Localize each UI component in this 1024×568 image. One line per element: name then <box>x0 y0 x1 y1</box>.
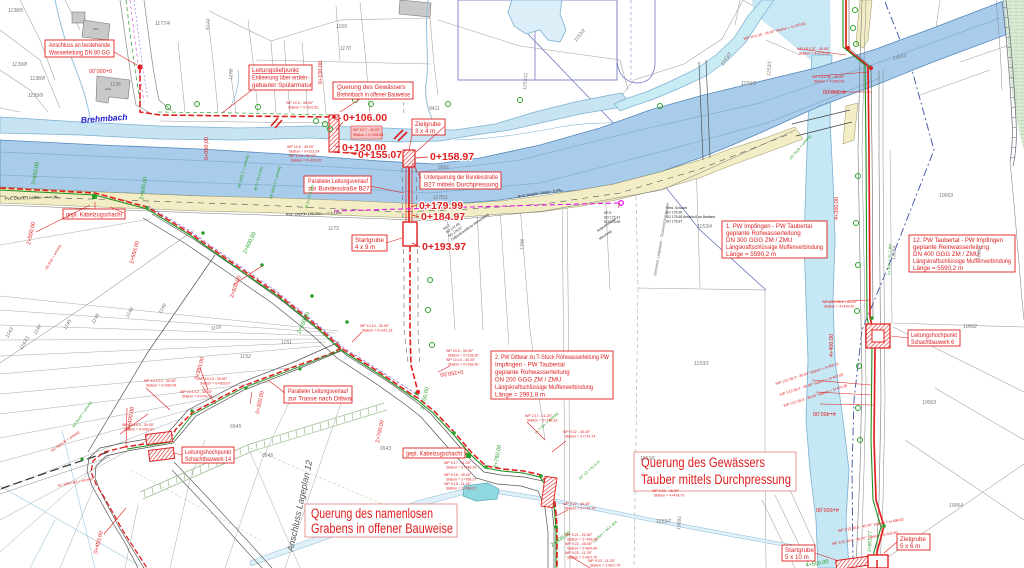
svg-text:gebauter Spülarmatur: gebauter Spülarmatur <box>252 82 312 89</box>
svg-text:WP 9.15 - 11.25°: WP 9.15 - 11.25° <box>444 482 472 486</box>
svg-text:B27 mittels Durchpressung: B27 mittels Durchpressung <box>424 182 499 189</box>
svg-text:10063: 10063 <box>939 193 953 199</box>
svg-text:1151: 1151 <box>281 340 292 346</box>
svg-text:WP 10.13.2 - 30.00°: WP 10.13.2 - 30.00° <box>144 379 177 383</box>
svg-text:Station = 2+748.33: Station = 2+748.33 <box>446 466 476 470</box>
svg-text:WP 10.13.4 - 30.00°: WP 10.13.4 - 30.00° <box>122 423 155 427</box>
svg-text:Querung des Gewässers: Querung des Gewässers <box>641 455 765 470</box>
svg-text:Station = 2+768.27: Station = 2+768.27 <box>446 478 476 482</box>
svg-text:gepl. Kabelzugschacht: gepl. Kabelzugschacht <box>406 451 462 458</box>
svg-text:Station = 0+238.30: Station = 0+238.30 <box>448 354 478 358</box>
svg-text:1169: 1169 <box>336 24 347 30</box>
svg-text:0+050,00: 0+050,00 <box>204 137 210 160</box>
svg-text:WP 9.21 - 22.50°: WP 9.21 - 22.50° <box>565 533 593 537</box>
svg-text:4+450,00: 4+450,00 <box>813 410 836 416</box>
svg-text:Entleerung über erdein-: Entleerung über erdein- <box>252 75 309 82</box>
svg-text:6545: 6545 <box>230 424 241 430</box>
svg-text:WP 10.7 - 45.00°: WP 10.7 - 45.00° <box>353 128 381 132</box>
svg-text:1177/4: 1177/4 <box>155 21 170 27</box>
svg-text:4+500,00: 4+500,00 <box>816 506 839 512</box>
svg-text:0+000,00: 0+000,00 <box>89 67 112 73</box>
svg-text:WP 10.10 - 30.00°: WP 10.10 - 30.00° <box>360 324 390 328</box>
svg-text:1138/8: 1138/8 <box>30 76 45 82</box>
svg-text:WP 9.22 - 45.00°: WP 9.22 - 45.00° <box>563 502 591 506</box>
svg-text:geplante Rohwasserleitung: geplante Rohwasserleitung <box>726 230 801 237</box>
svg-text:6546: 6546 <box>262 453 273 459</box>
svg-text:Tauber mittels Durchpressung: Tauber mittels Durchpressung <box>641 472 791 487</box>
svg-text:Wasserleitung DN 80 GG: Wasserleitung DN 80 GG <box>49 50 110 57</box>
svg-text:Zielgrube: Zielgrube <box>900 536 926 543</box>
svg-text:WP 9.22 - 45.00°: WP 9.22 - 45.00° <box>565 542 593 546</box>
svg-text:geplante Rohwasserleitung: geplante Rohwasserleitung <box>495 369 570 376</box>
svg-text:DN 200 GGG ZM / ZMU: DN 200 GGG ZM / ZMU <box>495 377 561 384</box>
svg-text:0+158.97: 0+158.97 <box>430 151 474 163</box>
svg-text:1176: 1176 <box>228 69 235 80</box>
svg-text:Station = 2+779.74: Station = 2+779.74 <box>565 435 595 439</box>
svg-text:10065: 10065 <box>976 246 983 261</box>
svg-text:Brehmbach in offener Bauweise: Brehmbach in offener Bauweise <box>337 92 410 99</box>
svg-text:0+106.00: 0+106.00 <box>343 112 387 124</box>
svg-text:Länge = 2991,8 m: Länge = 2991,8 m <box>495 392 545 399</box>
svg-text:1153/6: 1153/6 <box>640 456 655 462</box>
svg-text:DN 300 GGG ZM / ZMU: DN 300 GGG ZM / ZMU <box>726 237 792 244</box>
svg-text:6171: 6171 <box>205 18 212 30</box>
svg-text:Station = 0+063.67: Station = 0+063.67 <box>200 382 230 386</box>
svg-text:1173: 1173 <box>328 226 339 232</box>
svg-text:Grabens in offener Bauweise: Grabens in offener Bauweise <box>311 521 453 536</box>
svg-text:Station = 2+783.98: Station = 2+783.98 <box>567 538 597 542</box>
svg-text:Unterquerung der Bundesstraße: Unterquerung der Bundesstraße <box>424 174 498 181</box>
svg-text:WP 10.13 - 30.00°: WP 10.13 - 30.00° <box>198 377 228 381</box>
svg-text:KS 9: KS 9 <box>604 211 611 215</box>
svg-text:1153/7: 1153/7 <box>656 519 671 525</box>
svg-text:Station = 0+238.30: Station = 0+238.30 <box>448 363 478 367</box>
svg-text:WP 9.22 - 45.00°: WP 9.22 - 45.00° <box>563 430 591 434</box>
svg-text:Station = 2+779.74: Station = 2+779.74 <box>565 507 595 511</box>
svg-text:6543: 6543 <box>380 446 391 452</box>
svg-text:Station = 2+807.70: Station = 2+807.70 <box>590 564 620 568</box>
svg-text:WP 9.17 - 11.25°: WP 9.17 - 11.25° <box>444 461 472 465</box>
svg-text:1. PW Impfingen - PW Taubertal: 1. PW Impfingen - PW Taubertal <box>726 223 812 230</box>
svg-text:4+400,00: 4+400,00 <box>829 334 835 357</box>
svg-text:WP 9.16 - 45.00°: WP 9.16 - 45.00° <box>444 473 472 477</box>
svg-text:Länge = 5590,2 m: Länge = 5590,2 m <box>913 265 963 272</box>
svg-text:Leitungshochpunkt: Leitungshochpunkt <box>185 449 231 456</box>
svg-text:Länge = 5590,2 m: Länge = 5590,2 m <box>726 251 776 258</box>
svg-text:10062: 10062 <box>963 324 977 330</box>
svg-text:1153/4: 1153/4 <box>697 224 712 230</box>
svg-text:Längskraftschlüssige Muffenver: Längskraftschlüssige Muffenverbindung <box>495 384 594 391</box>
svg-text:10064: 10064 <box>949 503 963 509</box>
svg-text:WP 10.6 - 30.00°: WP 10.6 - 30.00° <box>289 154 317 158</box>
svg-text:Querung des namenlosen: Querung des namenlosen <box>311 506 433 521</box>
svg-text:WP 9.20 - 45.00°: WP 9.20 - 45.00° <box>652 489 680 493</box>
svg-text:Station = 4+290.43: Station = 4+290.43 <box>814 80 844 84</box>
svg-text:4 x 9 m: 4 x 9 m <box>355 244 375 251</box>
svg-text:Station = 0+102.82: Station = 0+102.82 <box>288 106 318 110</box>
svg-text:Paralleler Leitungsverlauf: Paralleler Leitungsverlauf <box>288 388 348 395</box>
svg-text:DN 400 GGG ZM / ZMU: DN 400 GGG ZM / ZMU <box>913 251 979 258</box>
svg-text:WP 9.23 - 11.25°: WP 9.23 - 11.25° <box>565 551 593 555</box>
svg-text:1170: 1170 <box>340 46 351 52</box>
svg-text:6691: 6691 <box>438 165 449 171</box>
svg-text:WP 1/12.36 - 45.00°: WP 1/12.36 - 45.00° <box>812 75 845 79</box>
svg-text:Leitungshochpunkt: Leitungshochpunkt <box>911 332 957 339</box>
svg-text:1153/3: 1153/3 <box>741 81 756 87</box>
svg-text:9411: 9411 <box>429 106 440 112</box>
svg-text:Zielgrube: Zielgrube <box>415 121 441 128</box>
svg-text:WP 10.3 - 45.00°: WP 10.3 - 45.00° <box>286 101 314 105</box>
svg-text:Station = 0+241.18: Station = 0+241.18 <box>362 329 392 333</box>
svg-text:Querung des Gewässers: Querung des Gewässers <box>337 84 405 91</box>
svg-text:Station = 0+079.74: Station = 0+079.74 <box>182 395 212 399</box>
svg-text:Station = 2+748.33: Station = 2+748.33 <box>527 419 557 423</box>
svg-text:Station = 0+124.02: Station = 0+124.02 <box>291 159 321 163</box>
svg-text:5 x 10 m: 5 x 10 m <box>785 554 809 561</box>
svg-text:SO 176,87: SO 176,87 <box>666 220 682 224</box>
svg-text:Impfingen - PW Taubertal: Impfingen - PW Taubertal <box>495 362 565 369</box>
svg-text:1152: 1152 <box>240 354 251 360</box>
svg-text:Paralleler Leitungsverlauf: Paralleler Leitungsverlauf <box>308 178 368 185</box>
svg-text:0+184.97: 0+184.97 <box>421 211 465 223</box>
svg-text:Station = 0+080.54: Station = 0+080.54 <box>146 384 176 388</box>
svg-text:1176/1: 1176/1 <box>433 195 448 201</box>
svg-text:13091: 13091 <box>676 516 683 531</box>
svg-text:Station = 0+155.84: Station = 0+155.84 <box>353 133 383 137</box>
svg-text:1138/5: 1138/5 <box>8 8 23 14</box>
svg-text:1139/8: 1139/8 <box>12 62 27 68</box>
svg-text:wha: wha <box>105 87 111 91</box>
svg-text:Startgrube: Startgrube <box>355 237 384 244</box>
svg-text:Station = 4+478.70: Station = 4+478.70 <box>654 494 684 498</box>
svg-text:Startgrube: Startgrube <box>785 547 814 554</box>
svg-text:13059: 13059 <box>891 246 898 261</box>
svg-text:0+100,00: 0+100,00 <box>318 61 324 84</box>
svg-text:10063: 10063 <box>922 400 936 406</box>
svg-text:0+155.07: 0+155.07 <box>358 149 402 161</box>
svg-text:WP 2.17 - 11.25°: WP 2.17 - 11.25° <box>525 414 553 418</box>
svg-text:SO 175,55 Anschluß an Bestand: SO 175,55 Anschluß an Bestand <box>666 215 715 219</box>
svg-text:Leitungstiefpunkt: Leitungstiefpunkt <box>252 67 299 74</box>
svg-text:Längskraftschlüssige Muffenver: Längskraftschlüssige Muffenverbindung <box>913 258 1012 265</box>
svg-text:wha: wha <box>93 27 99 31</box>
svg-text:5 x 6 m: 5 x 6 m <box>900 543 920 550</box>
svg-text:12. PW Taubertal - PW Impfinge: 12. PW Taubertal - PW Impfingen <box>913 237 1004 244</box>
svg-text:0+193.97: 0+193.97 <box>422 241 466 253</box>
svg-text:1153/1: 1153/1 <box>694 361 709 367</box>
svg-text:Schachtbauwerk 6: Schachtbauwerk 6 <box>911 339 954 346</box>
svg-text:Station = 2+800.46: Station = 2+800.46 <box>567 547 597 551</box>
svg-text:4+300,00: 4+300,00 <box>823 88 846 94</box>
svg-text:WP 10.9 - 30.00°: WP 10.9 - 30.00° <box>446 349 474 353</box>
svg-text:Längskraftschlüssige Muffenver: Längskraftschlüssige Muffenverbindung <box>726 244 823 251</box>
svg-text:Station = 0+122.24: Station = 0+122.24 <box>289 150 319 154</box>
svg-text:WP 9.23 - 11.25°: WP 9.23 - 11.25° <box>588 559 616 563</box>
svg-text:1139/9: 1139/9 <box>28 93 43 99</box>
svg-text:2. PW Dittwar zu T-Stück Rohwa: 2. PW Dittwar zu T-Stück Rohwasserleitun… <box>495 354 609 361</box>
svg-text:zur Bundesstraße B27: zur Bundesstraße B27 <box>308 186 370 193</box>
svg-text:Station = 2+766.21: Station = 2+766.21 <box>446 487 476 491</box>
svg-text:WP 10.5 - 45.00°: WP 10.5 - 45.00° <box>287 145 315 149</box>
svg-text:Station = 4+439.42: Station = 4+439.42 <box>824 305 854 309</box>
svg-text:1136: 1136 <box>110 82 121 88</box>
svg-text:3 x 4 m: 3 x 4 m <box>415 128 435 135</box>
svg-text:Anschluss an bestehende: Anschluss an bestehende <box>49 42 110 49</box>
svg-text:Schachtbauwerk 14: Schachtbauwerk 14 <box>185 456 231 463</box>
svg-text:WP 10.10 - 45.00°: WP 10.10 - 45.00° <box>446 358 476 362</box>
svg-text:1346: 1346 <box>519 238 526 250</box>
svg-text:4+350,00: 4+350,00 <box>834 197 840 220</box>
svg-text:zur Trasse nach Dittwar: zur Trasse nach Dittwar <box>288 396 353 403</box>
